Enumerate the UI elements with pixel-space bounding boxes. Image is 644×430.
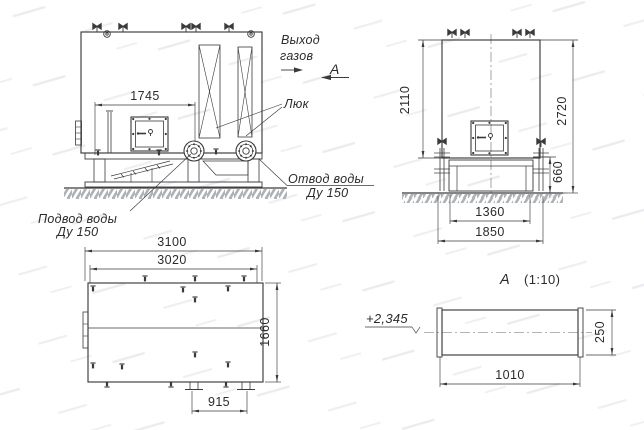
water-outlet-flange — [236, 141, 256, 161]
label-text: Люк — [283, 97, 310, 111]
ground-hatch — [64, 189, 287, 199]
dim-text: 3100 — [157, 235, 186, 249]
dim-text: 1660 — [258, 317, 272, 346]
dim-text: 660 — [551, 161, 565, 183]
dim-text: 3020 — [157, 253, 186, 267]
ground-hatch — [402, 194, 563, 203]
label-text: Выход — [281, 33, 320, 47]
section-title-scale: (1:10) — [524, 272, 560, 287]
label-text: Ду 150 — [305, 186, 348, 200]
dim-text: 1360 — [475, 205, 504, 219]
dim-text: 1010 — [495, 368, 524, 382]
label-text: Отвод воды — [288, 172, 364, 186]
section-letter: А — [329, 61, 339, 77]
drawing-svg: 1745 Выход газов А Люк Отвод воды Ду 150 — [0, 0, 644, 430]
section-title-letter: А — [499, 272, 510, 288]
dim-text: 1745 — [130, 89, 159, 103]
level-text: +2,345 — [366, 311, 408, 326]
dim-text: 2110 — [398, 86, 412, 114]
label-text: Подвод воды — [38, 212, 117, 226]
technical-drawing-sheet: 1745 Выход газов А Люк Отвод воды Ду 150 — [0, 0, 644, 430]
label-text: Ду 150 — [55, 225, 98, 239]
dim-text: 2720 — [555, 96, 569, 125]
label-text: газов — [280, 49, 314, 63]
dim-text: 250 — [593, 321, 607, 343]
dim-text: 915 — [208, 395, 230, 409]
dim-text: 1850 — [475, 225, 504, 239]
